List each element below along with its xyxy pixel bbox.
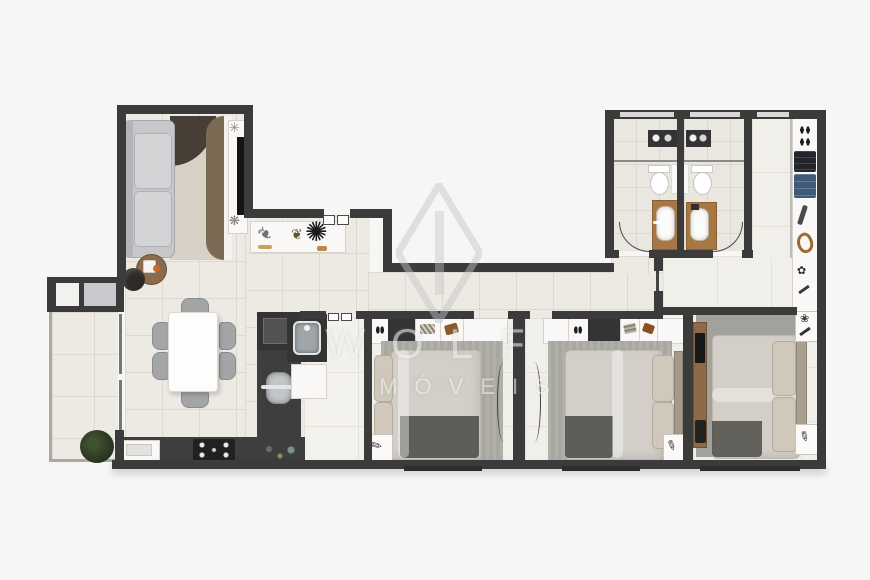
dining-chair-left-1	[152, 322, 169, 350]
wall-bath-left	[605, 110, 614, 258]
bath1-window	[620, 112, 674, 117]
laundry-faucet	[304, 325, 310, 331]
balcony-glass-slider	[119, 314, 122, 374]
bed1-sheet-fold	[398, 350, 409, 458]
master-pillow-2	[772, 397, 796, 452]
bed2-window-sill	[562, 466, 640, 471]
appliance-inner	[126, 444, 152, 456]
wall-corridor-top	[383, 263, 614, 272]
wall-corridor-bottom-a	[300, 311, 326, 319]
service-door-leaf-2	[341, 313, 352, 321]
closet-flower-decor-icon: ✿	[797, 266, 806, 277]
bed1-window-sill	[404, 466, 482, 471]
master-pillow-1	[772, 341, 796, 396]
wall-bath2-right	[744, 118, 752, 251]
master-throw-blanket	[712, 421, 762, 457]
wall-bath-divider	[677, 118, 684, 251]
closet-clothes-black	[794, 151, 816, 172]
stove-knobs	[262, 443, 298, 461]
dining-chair-right-2	[219, 352, 236, 380]
balcony-wall-stub	[115, 430, 124, 462]
bed1-sandals-item	[420, 324, 435, 334]
cooktop	[193, 439, 235, 461]
service-door-leaf-1	[328, 313, 339, 321]
rug-brown-band	[206, 116, 224, 260]
console-star-decor-icon: ✳	[229, 121, 240, 134]
wall-right-outer	[817, 110, 826, 469]
bath2-shower-shelf	[686, 130, 711, 147]
bath2-toilet-bowl	[693, 172, 712, 195]
console-flower-decor-icon: ❋	[229, 214, 240, 227]
closet-shoes-pair-2	[795, 136, 815, 148]
dining-chair-bottom	[181, 391, 209, 408]
wall-living-left	[117, 105, 126, 277]
washing-machine	[291, 364, 327, 399]
closet-clothes-blue	[794, 174, 816, 198]
wall-bath-bottom-c	[742, 250, 753, 258]
bed2-throw-blanket	[565, 416, 613, 458]
bed2-pillow-1	[652, 355, 674, 402]
bedroom1-door-leaf	[497, 362, 510, 442]
entry-door-leaf-1	[323, 215, 335, 225]
feather-vase	[258, 245, 272, 249]
balcony-potted-plant	[80, 430, 114, 463]
master-window-sill	[700, 466, 800, 471]
bath1-faucet	[653, 221, 662, 224]
master-tv-screen	[695, 333, 705, 363]
wall-corridor-bottom-c	[552, 311, 656, 319]
balcony-railing-left	[49, 312, 52, 462]
closet-shoes-pair-1	[795, 124, 815, 136]
wall-bedroom-door-jamb	[508, 311, 530, 319]
bed1-pillow-1	[374, 355, 393, 402]
master-nightstand-plant-icon: ❀	[800, 314, 809, 325]
bed2-wardrobe-dark	[588, 318, 620, 342]
wall-bath-bottom-a	[605, 250, 619, 258]
bath1-glass-partition	[613, 160, 677, 162]
bath1-toilet-bowl	[650, 172, 669, 195]
floor-plan: ✳ ❋ ❧ ❦ ✺	[0, 0, 870, 580]
balcony-window-pane-1	[56, 283, 79, 306]
bath2-soap-dish	[691, 204, 699, 210]
balcony-glass-slider-2	[119, 380, 122, 432]
suite-door-leaf	[656, 271, 659, 291]
wall-bedroom2-master-divider	[683, 313, 693, 462]
wall-corridor-bottom-b	[356, 311, 474, 319]
bath-hall-floor	[611, 256, 657, 274]
wall-bedroom1-left	[364, 319, 372, 464]
bed1-wardrobe-shoes	[373, 323, 387, 337]
wall-hall-top-a	[244, 209, 324, 218]
master-panel-bag	[695, 420, 706, 443]
small-plant-icon: ❦	[291, 227, 303, 241]
tv-screen	[237, 137, 244, 215]
wall-bedroom-divider	[513, 319, 525, 462]
dining-table	[168, 312, 218, 392]
bath2-glass-partition	[684, 160, 744, 162]
bedroom2-door-leaf	[528, 362, 541, 442]
bed1-wardrobe-dark	[388, 318, 415, 342]
entry-door-leaf-2	[337, 215, 349, 225]
wall-living-right	[244, 105, 253, 218]
side-table-mug	[153, 265, 160, 272]
dining-chair-left-2	[152, 352, 169, 380]
dining-chair-right-1	[219, 322, 236, 350]
bed2-sheet-fold	[612, 350, 623, 458]
sofa-cushion-2	[134, 191, 172, 247]
bath2-window	[690, 112, 740, 117]
bed2-wardrobe-shoes	[571, 323, 585, 337]
wall-living-top	[117, 105, 253, 114]
flower-pot	[317, 246, 327, 251]
closet-window	[757, 112, 789, 117]
bed1-throw-blanket	[400, 416, 479, 458]
sofa-cushion-1	[134, 133, 172, 189]
bath2-sink	[690, 208, 709, 241]
bath1-shower-shelf	[648, 130, 677, 147]
wall-suite-vert-a	[654, 250, 663, 271]
balcony-window-pane-2	[84, 283, 116, 306]
